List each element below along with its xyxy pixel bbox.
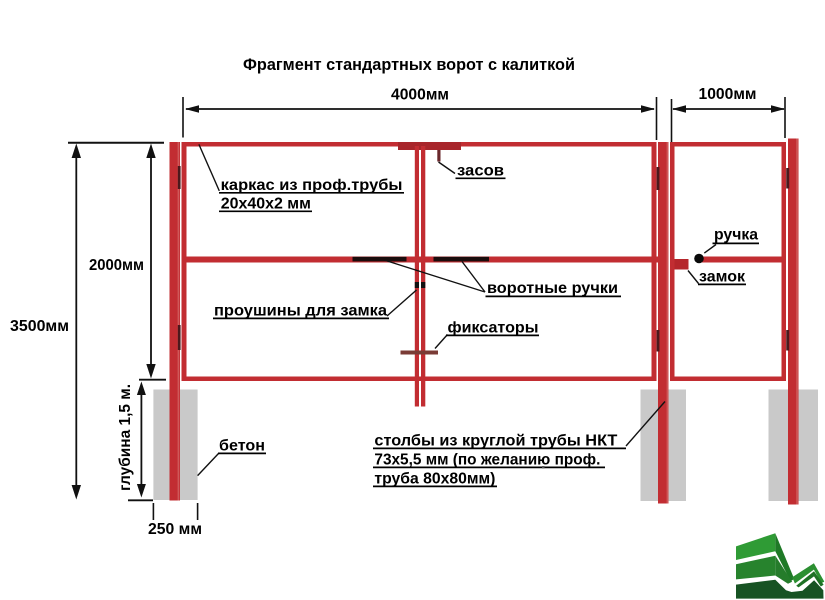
svg-text:3500мм: 3500мм [10, 318, 69, 335]
svg-text:4000мм: 4000мм [391, 87, 449, 104]
svg-text:бетон: бетон [219, 438, 265, 455]
svg-text:1000мм: 1000мм [699, 86, 757, 103]
svg-text:воротные ручки: воротные ручки [487, 280, 618, 297]
svg-text:ручка: ручка [714, 227, 758, 244]
svg-text:фиксаторы: фиксаторы [448, 320, 539, 337]
svg-text:проушины для замка: проушины для замка [214, 303, 387, 320]
svg-text:73х5,5 мм (по желанию проф.: 73х5,5 мм (по желанию проф. [374, 452, 600, 469]
svg-text:труба 80х80мм): труба 80х80мм) [374, 471, 495, 488]
svg-text:глубина 1,5 м.: глубина 1,5 м. [117, 384, 134, 491]
svg-text:250 мм: 250 мм [148, 521, 202, 538]
svg-text:20х40х2 мм: 20х40х2 мм [221, 196, 311, 213]
svg-text:замок: замок [699, 269, 746, 286]
svg-text:Фрагмент стандартных ворот с к: Фрагмент стандартных ворот с калиткой [243, 56, 575, 74]
svg-text:каркас из проф.трубы: каркас из проф.трубы [221, 177, 403, 194]
svg-text:2000мм: 2000мм [89, 257, 144, 274]
svg-text:засов: засов [457, 163, 504, 180]
svg-text:столбы из круглой трубы НКТ: столбы из круглой трубы НКТ [374, 433, 617, 450]
